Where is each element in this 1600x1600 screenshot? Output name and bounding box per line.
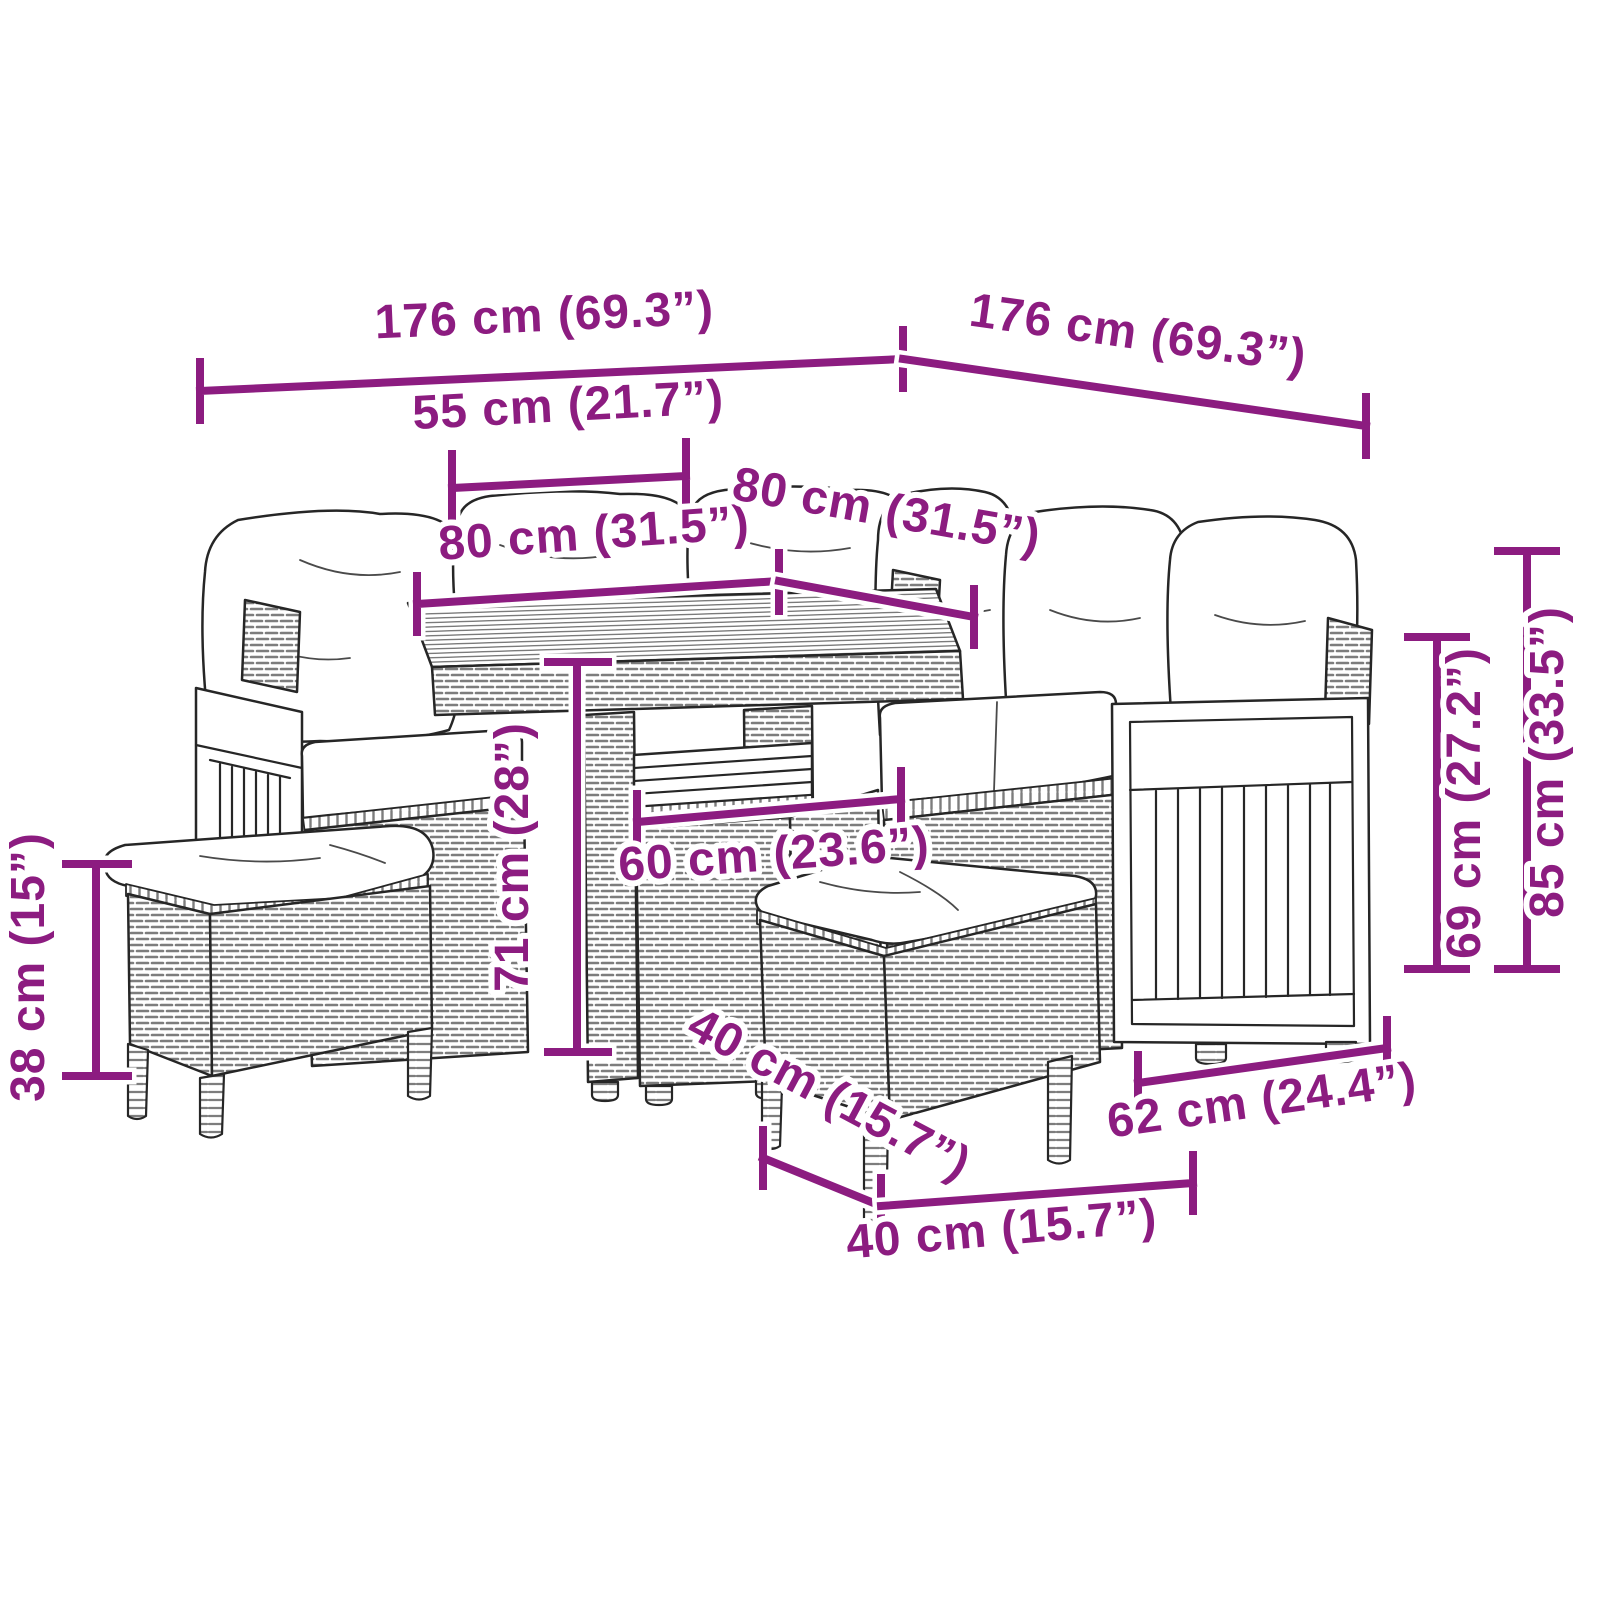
stool-leg bbox=[200, 1074, 224, 1138]
right-armrest-panel bbox=[1112, 698, 1370, 1064]
stool-left-drawing bbox=[104, 826, 433, 1138]
furniture-dimension-diagram: 176 cm (69.3”) 176 cm (69.3”) 55 cm (21.… bbox=[0, 0, 1600, 1600]
stool-leg bbox=[408, 1028, 432, 1100]
dim-sofa-width-left-label: 176 cm (69.3”) bbox=[374, 282, 716, 350]
dim-sofa-back-height-label: 85 cm (33.5”) bbox=[1521, 606, 1574, 918]
dim-sofa-back-height: 85 cm (33.5”) bbox=[1498, 551, 1574, 969]
dim-table-height-label: 71 cm (28”) bbox=[486, 722, 539, 992]
table-leg-left bbox=[584, 712, 638, 1082]
dim-stool-width: 40 cm (15.7”) bbox=[844, 1155, 1193, 1270]
panel-foot bbox=[1196, 1044, 1226, 1064]
rattan-post-left bbox=[242, 600, 300, 692]
dim-sofa-width-right: 176 cm (69.3”) bbox=[903, 284, 1366, 455]
stool-leg bbox=[1048, 1056, 1072, 1164]
table-foot bbox=[592, 1082, 618, 1101]
table-foot bbox=[646, 1086, 672, 1105]
dim-armrest-panel-height: 69 cm (27.2”) bbox=[1408, 637, 1491, 969]
dim-stool-height-label: 38 cm (15”) bbox=[2, 832, 55, 1102]
diagram-canvas: 176 cm (69.3”) 176 cm (69.3”) 55 cm (21.… bbox=[0, 0, 1600, 1600]
dim-armrest-panel-height-label: 69 cm (27.2”) bbox=[1438, 647, 1491, 959]
